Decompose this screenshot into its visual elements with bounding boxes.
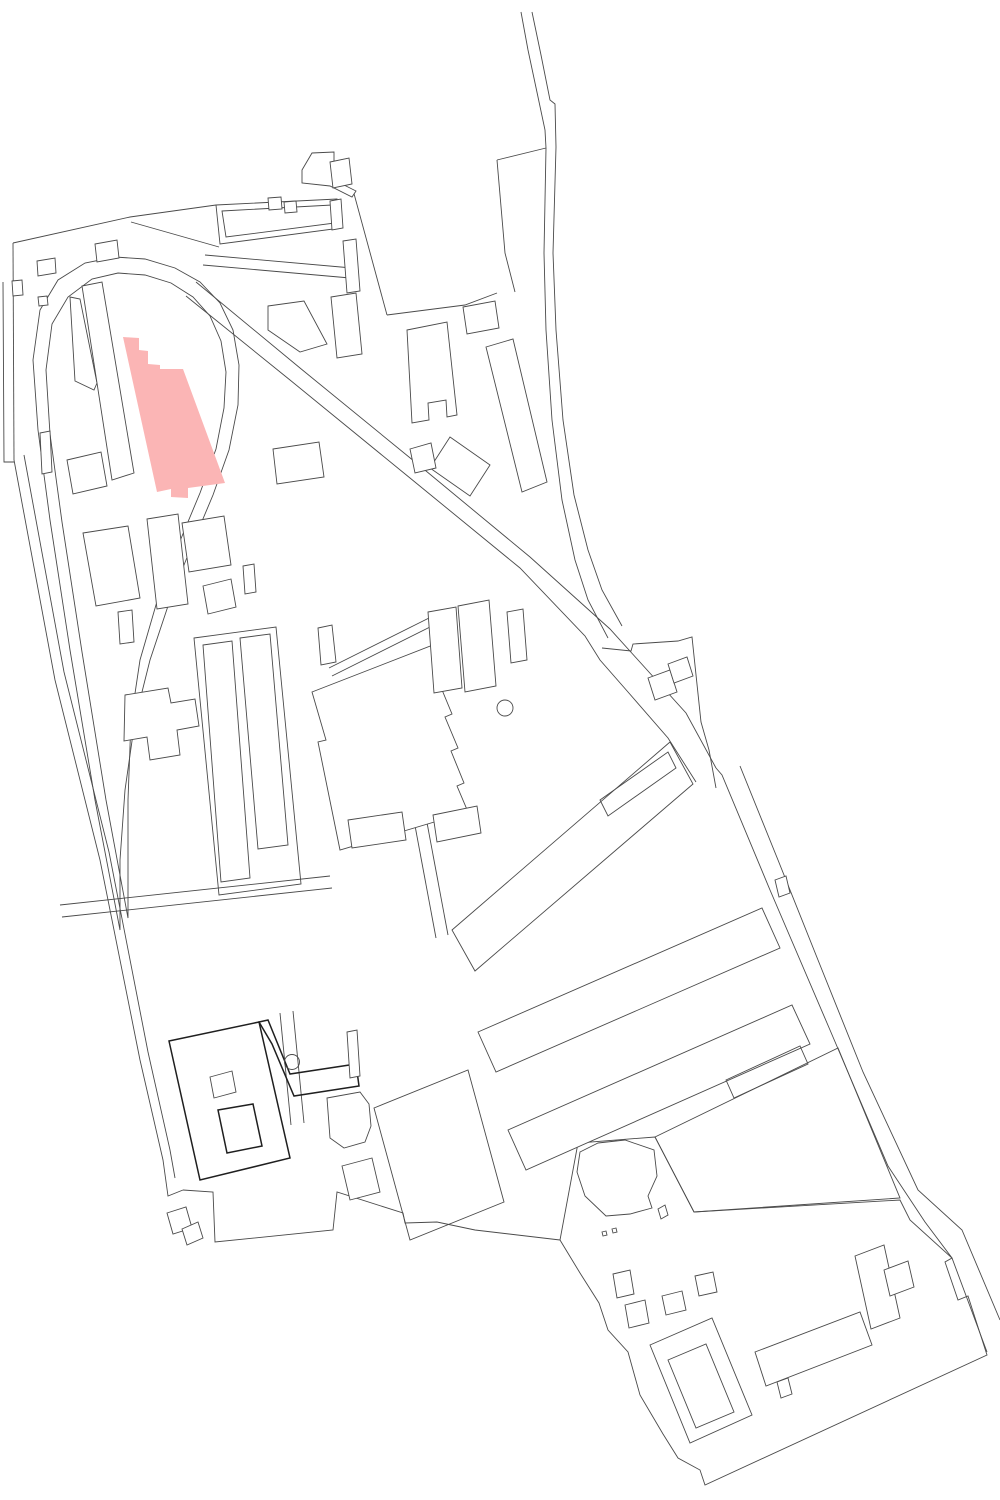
building-slab-330 [331,293,362,358]
landmark-circle-south [285,1055,300,1070]
fragment-sliver [658,1205,668,1219]
compound-square-3 [662,1291,686,1315]
building-rect-182 [182,516,231,572]
building-tilt-square-south [342,1158,380,1200]
building-cluster-428 [428,607,462,693]
landmark-circle-north [497,700,513,716]
building-square-203 [203,579,236,614]
wedge-top-boundary [497,148,546,160]
building-cluster-arm [507,609,527,663]
building-rect-118 [118,610,134,644]
building-small-a [37,258,56,276]
road-s-curve-left [521,12,608,638]
highlighted-building [123,337,225,498]
boundary-left-outer [3,282,14,462]
band-bump-upper [775,876,790,897]
building-hall-annex-a [268,197,282,210]
compound-square-2 [625,1300,649,1328]
slab-row-a [452,742,693,971]
building-small-c [38,296,48,306]
building-band-small [95,240,119,262]
building-tab-above-square [318,625,336,665]
building-cluster-458 [458,600,496,692]
building-top-east-b [330,199,343,230]
compound-square-4 [695,1272,717,1296]
boundary-left-vertical [13,243,14,460]
block-big-rect-south [374,1070,504,1240]
building-slab-147 [147,514,188,609]
compound-central-slab [755,1312,872,1386]
courtyard-bar [347,1030,360,1078]
compound-ring-outer [650,1318,752,1443]
building-rect-67 [67,452,107,494]
building-slab-485 [486,339,547,492]
building-rect-40 [40,431,52,474]
street-center-a [413,815,436,938]
street-left-cluster-b [293,1011,304,1123]
building-rect-273 [273,442,324,484]
building-cross [124,688,199,760]
building-slab-243 [243,564,256,594]
building-tilted-square [430,437,490,496]
compound-square-1 [613,1270,634,1298]
road-mid-horizontal-a [60,876,330,905]
building-tilted-square-annex [410,443,436,473]
building-small-b [12,280,23,296]
fragment-dot-a [602,1231,607,1236]
building-l-shape [268,301,327,352]
building-hall-annex-b [284,201,297,213]
top-band-inner-line [131,222,219,247]
courtyard-ring-outer [169,1022,290,1180]
field-west-boundary [353,190,387,315]
road-top-cluster-b [203,265,350,278]
building-top-east-a [330,158,352,188]
wedge-left-boundary [497,160,515,292]
building-u-bottom [407,322,457,423]
building-rect-462 [463,301,499,334]
map-canvas [0,0,1000,1500]
site-plan-svg [0,0,1000,1500]
boundary-bottom [183,1190,560,1242]
rowhouse-slab-2 [240,634,288,849]
fragment-dot-b [612,1228,617,1233]
road-mid-horizontal-b [62,888,332,917]
building-narrow-slab [343,239,360,293]
building-irregular-flag [577,1140,657,1216]
building-slab-83 [83,526,140,606]
building-d-shape [327,1092,371,1148]
road-top-cluster-a [205,255,352,268]
